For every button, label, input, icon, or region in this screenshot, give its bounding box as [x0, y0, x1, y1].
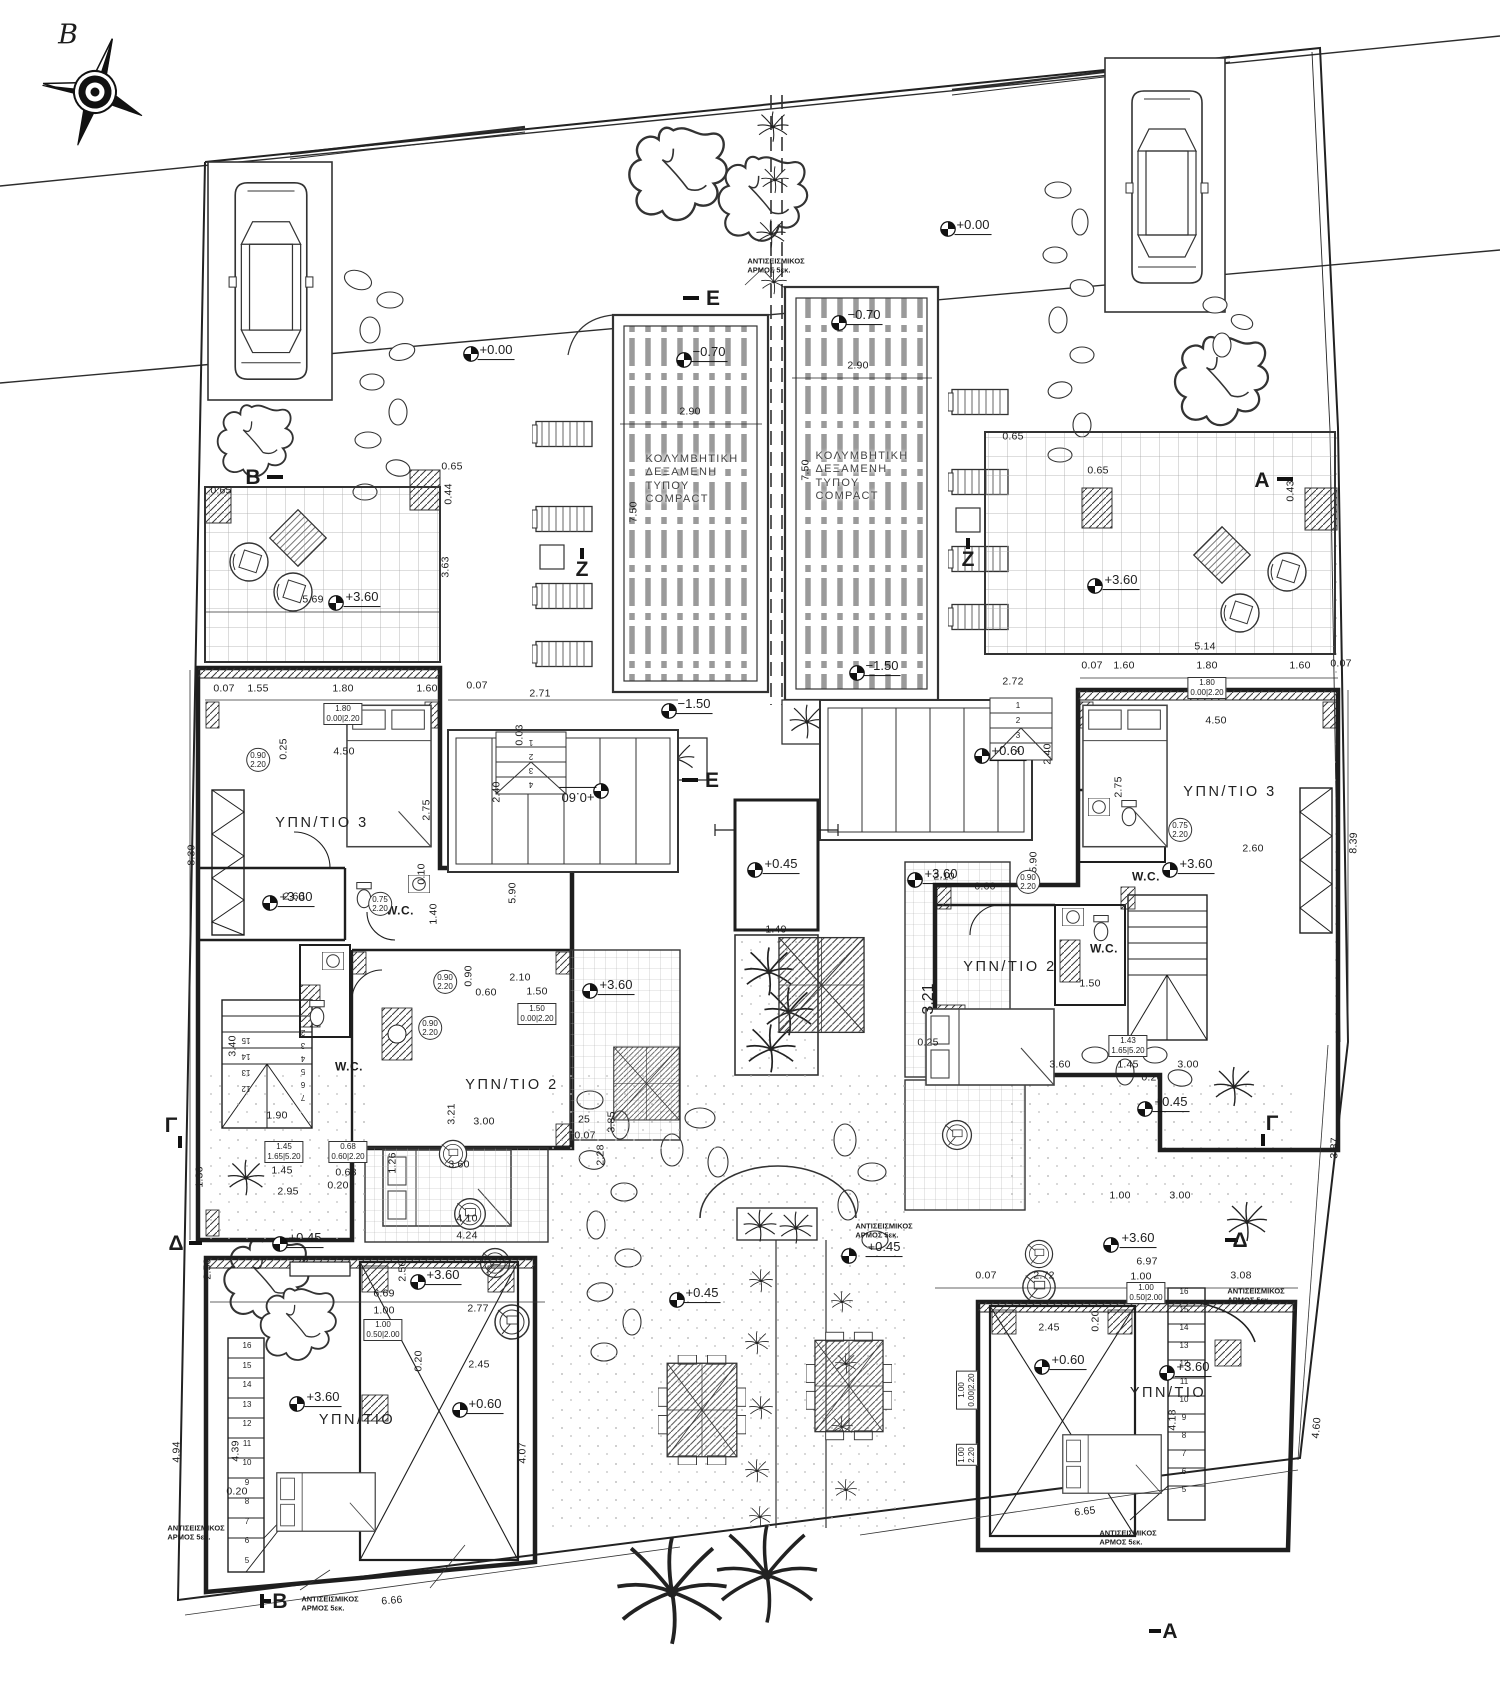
- pool-right: [785, 287, 938, 700]
- level-marker-icon: [975, 749, 989, 763]
- bed: [926, 1009, 1054, 1085]
- pool-left: [568, 315, 768, 692]
- parking-right: [1105, 58, 1225, 312]
- level-marker-icon: [1138, 1102, 1152, 1116]
- side-table: [956, 508, 980, 532]
- toilet: [1122, 801, 1136, 826]
- level-marker-icon: [464, 347, 478, 361]
- level-marker-icon: [1104, 1238, 1118, 1252]
- toilet: [1094, 916, 1108, 941]
- outdoor-table: [614, 1047, 680, 1120]
- level-marker-icon: [662, 704, 676, 718]
- level-marker-icon: [670, 1293, 684, 1307]
- level-marker-icon: [263, 896, 277, 910]
- level-marker-icon: [748, 863, 762, 877]
- terrace-right: [985, 432, 1337, 654]
- pool-pipe: [568, 315, 613, 355]
- level-marker-icon: [850, 666, 864, 680]
- level-marker-icon: [1160, 1366, 1174, 1380]
- bed: [347, 705, 431, 846]
- staircase: [228, 1338, 264, 1572]
- level-marker-icon: [453, 1403, 467, 1417]
- sink: [408, 875, 430, 893]
- center-steps-right: [990, 698, 1052, 760]
- level-marker-icon: [411, 1275, 425, 1289]
- plan-drawing: [0, 0, 1500, 1700]
- center-steps-left: [496, 732, 566, 794]
- level-marker-icon: [329, 596, 343, 610]
- terrace-left: [205, 470, 440, 662]
- side-table: [540, 545, 564, 569]
- level-marker-icon: [1088, 579, 1102, 593]
- outdoor-table: [779, 938, 864, 1033]
- level-marker-icon: [941, 222, 955, 236]
- bed: [277, 1473, 375, 1531]
- level-marker-icon: [290, 1397, 304, 1411]
- sink: [1088, 798, 1110, 816]
- car-icon: [1126, 91, 1208, 283]
- level-marker-icon: [832, 316, 846, 330]
- level-marker-icon: [677, 353, 691, 367]
- floor-plan-canvas: BBBAAΓΓΔΔEEZZ+0.00+0.00−0.70−0.70−1.50−1…: [0, 0, 1500, 1700]
- big-palms: [617, 1525, 817, 1644]
- north-compass-icon: [28, 23, 162, 162]
- toilet: [357, 883, 371, 908]
- level-marker-icon: [1035, 1360, 1049, 1374]
- parking-left: [208, 162, 332, 400]
- car-icon: [229, 183, 313, 379]
- sink: [322, 952, 344, 970]
- staircase: [1168, 1288, 1205, 1520]
- level-marker-icon: [594, 784, 608, 798]
- toilet: [310, 1001, 324, 1026]
- bed: [1083, 705, 1167, 846]
- bed: [1063, 1435, 1161, 1493]
- level-marker-icon: [273, 1237, 287, 1251]
- level-marker-icon: [842, 1249, 856, 1263]
- sink: [1062, 908, 1084, 926]
- level-marker-icon: [583, 984, 597, 998]
- level-marker-icon: [908, 873, 922, 887]
- level-marker-icon: [1163, 863, 1177, 877]
